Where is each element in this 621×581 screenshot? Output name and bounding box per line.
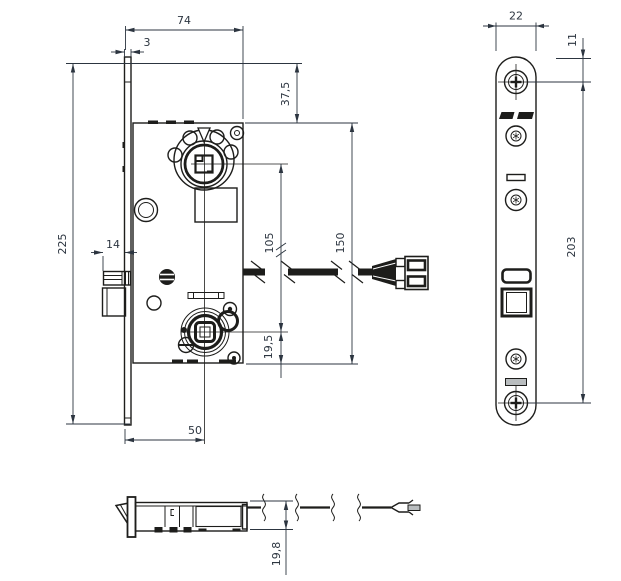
torx-screw-icon [506,349,526,369]
svg-text:3: 3 [144,36,151,49]
lock-technical-drawing: 74 3 225 37,5 [0,0,621,581]
cable-break-icon [263,494,266,521]
svg-text:19,5: 19,5 [262,335,275,360]
case-top-tab [166,121,176,125]
cable-break-icon [358,494,361,521]
wire-bundle [372,259,396,286]
dim-bolt-throw: 14 [91,238,137,271]
cable-break-icon [296,494,299,521]
svg-text:50: 50 [188,424,202,437]
handle-follower-assembly [168,127,244,191]
deadbolt-slot [502,289,531,316]
case-bottom-tab [172,360,183,364]
striped-screw-icon [159,269,175,285]
svg-text:37,5: 37,5 [279,82,292,107]
svg-text:19,8: 19,8 [270,542,283,567]
torx-screw-icon [506,190,527,211]
dim-case-top-offset: 37,5 [245,64,303,124]
svg-text:74: 74 [177,14,191,27]
latch-slot [503,270,531,283]
deadbolt [103,288,126,316]
dim-plate-screw-centers: 203 [528,82,591,403]
plug-connector [396,257,428,290]
cable-and-connector [243,257,428,290]
case-bottom-tab [187,360,198,364]
plate-slot [507,175,525,181]
svg-text:150: 150 [334,233,347,254]
dim-follower-to-cylinder: 105 [263,164,286,332]
plate-slot [506,379,527,386]
cylinder-assembly [179,303,241,365]
cable-break-icon [332,494,335,521]
dim-case-depth: 19,8 [250,501,293,575]
dim-case-width: 74 [126,14,244,119]
svg-text:203: 203 [565,237,578,258]
case-bottom-tab [219,360,236,364]
faceplate-view: 22 11 203 [483,10,591,426]
svg-text:105: 105 [263,233,276,254]
svg-text:11: 11 [566,33,579,47]
bottom-view: 19,8 [116,494,420,575]
latch-bolt [104,272,131,286]
brand-logo-mark [499,112,534,119]
svg-text:225: 225 [56,234,69,255]
dim-faceplate-thickness: 3 [111,36,151,57]
dim-cylinder-to-bottom: 19,5 [246,332,290,378]
dim-plate-top-to-screw: 11 [528,33,591,91]
case-body-section [136,503,248,533]
forend-plate [123,57,132,425]
case-top-tab [148,121,158,125]
svg-text:22: 22 [509,10,523,23]
wire-end-connector [391,500,420,515]
dim-plate-width: 22 [483,10,549,52]
gear-box [195,188,237,222]
dim-case-height: 150 [290,123,358,364]
torx-screw-icon [506,126,526,146]
drawing-canvas: 74 3 225 37,5 [0,0,621,581]
forend-plate-section [128,497,136,537]
dim-backset: 50 [125,424,205,444]
front-view [103,57,289,444]
bottom-cable [247,494,420,521]
guide-bushing [135,199,158,222]
case-top-tab [184,121,194,125]
front-dimensions: 74 3 225 37,5 [56,14,358,444]
fixing-screw-icon [231,127,244,140]
slide-slot [188,293,224,299]
svg-text:14: 14 [106,238,120,251]
hole [147,296,161,310]
